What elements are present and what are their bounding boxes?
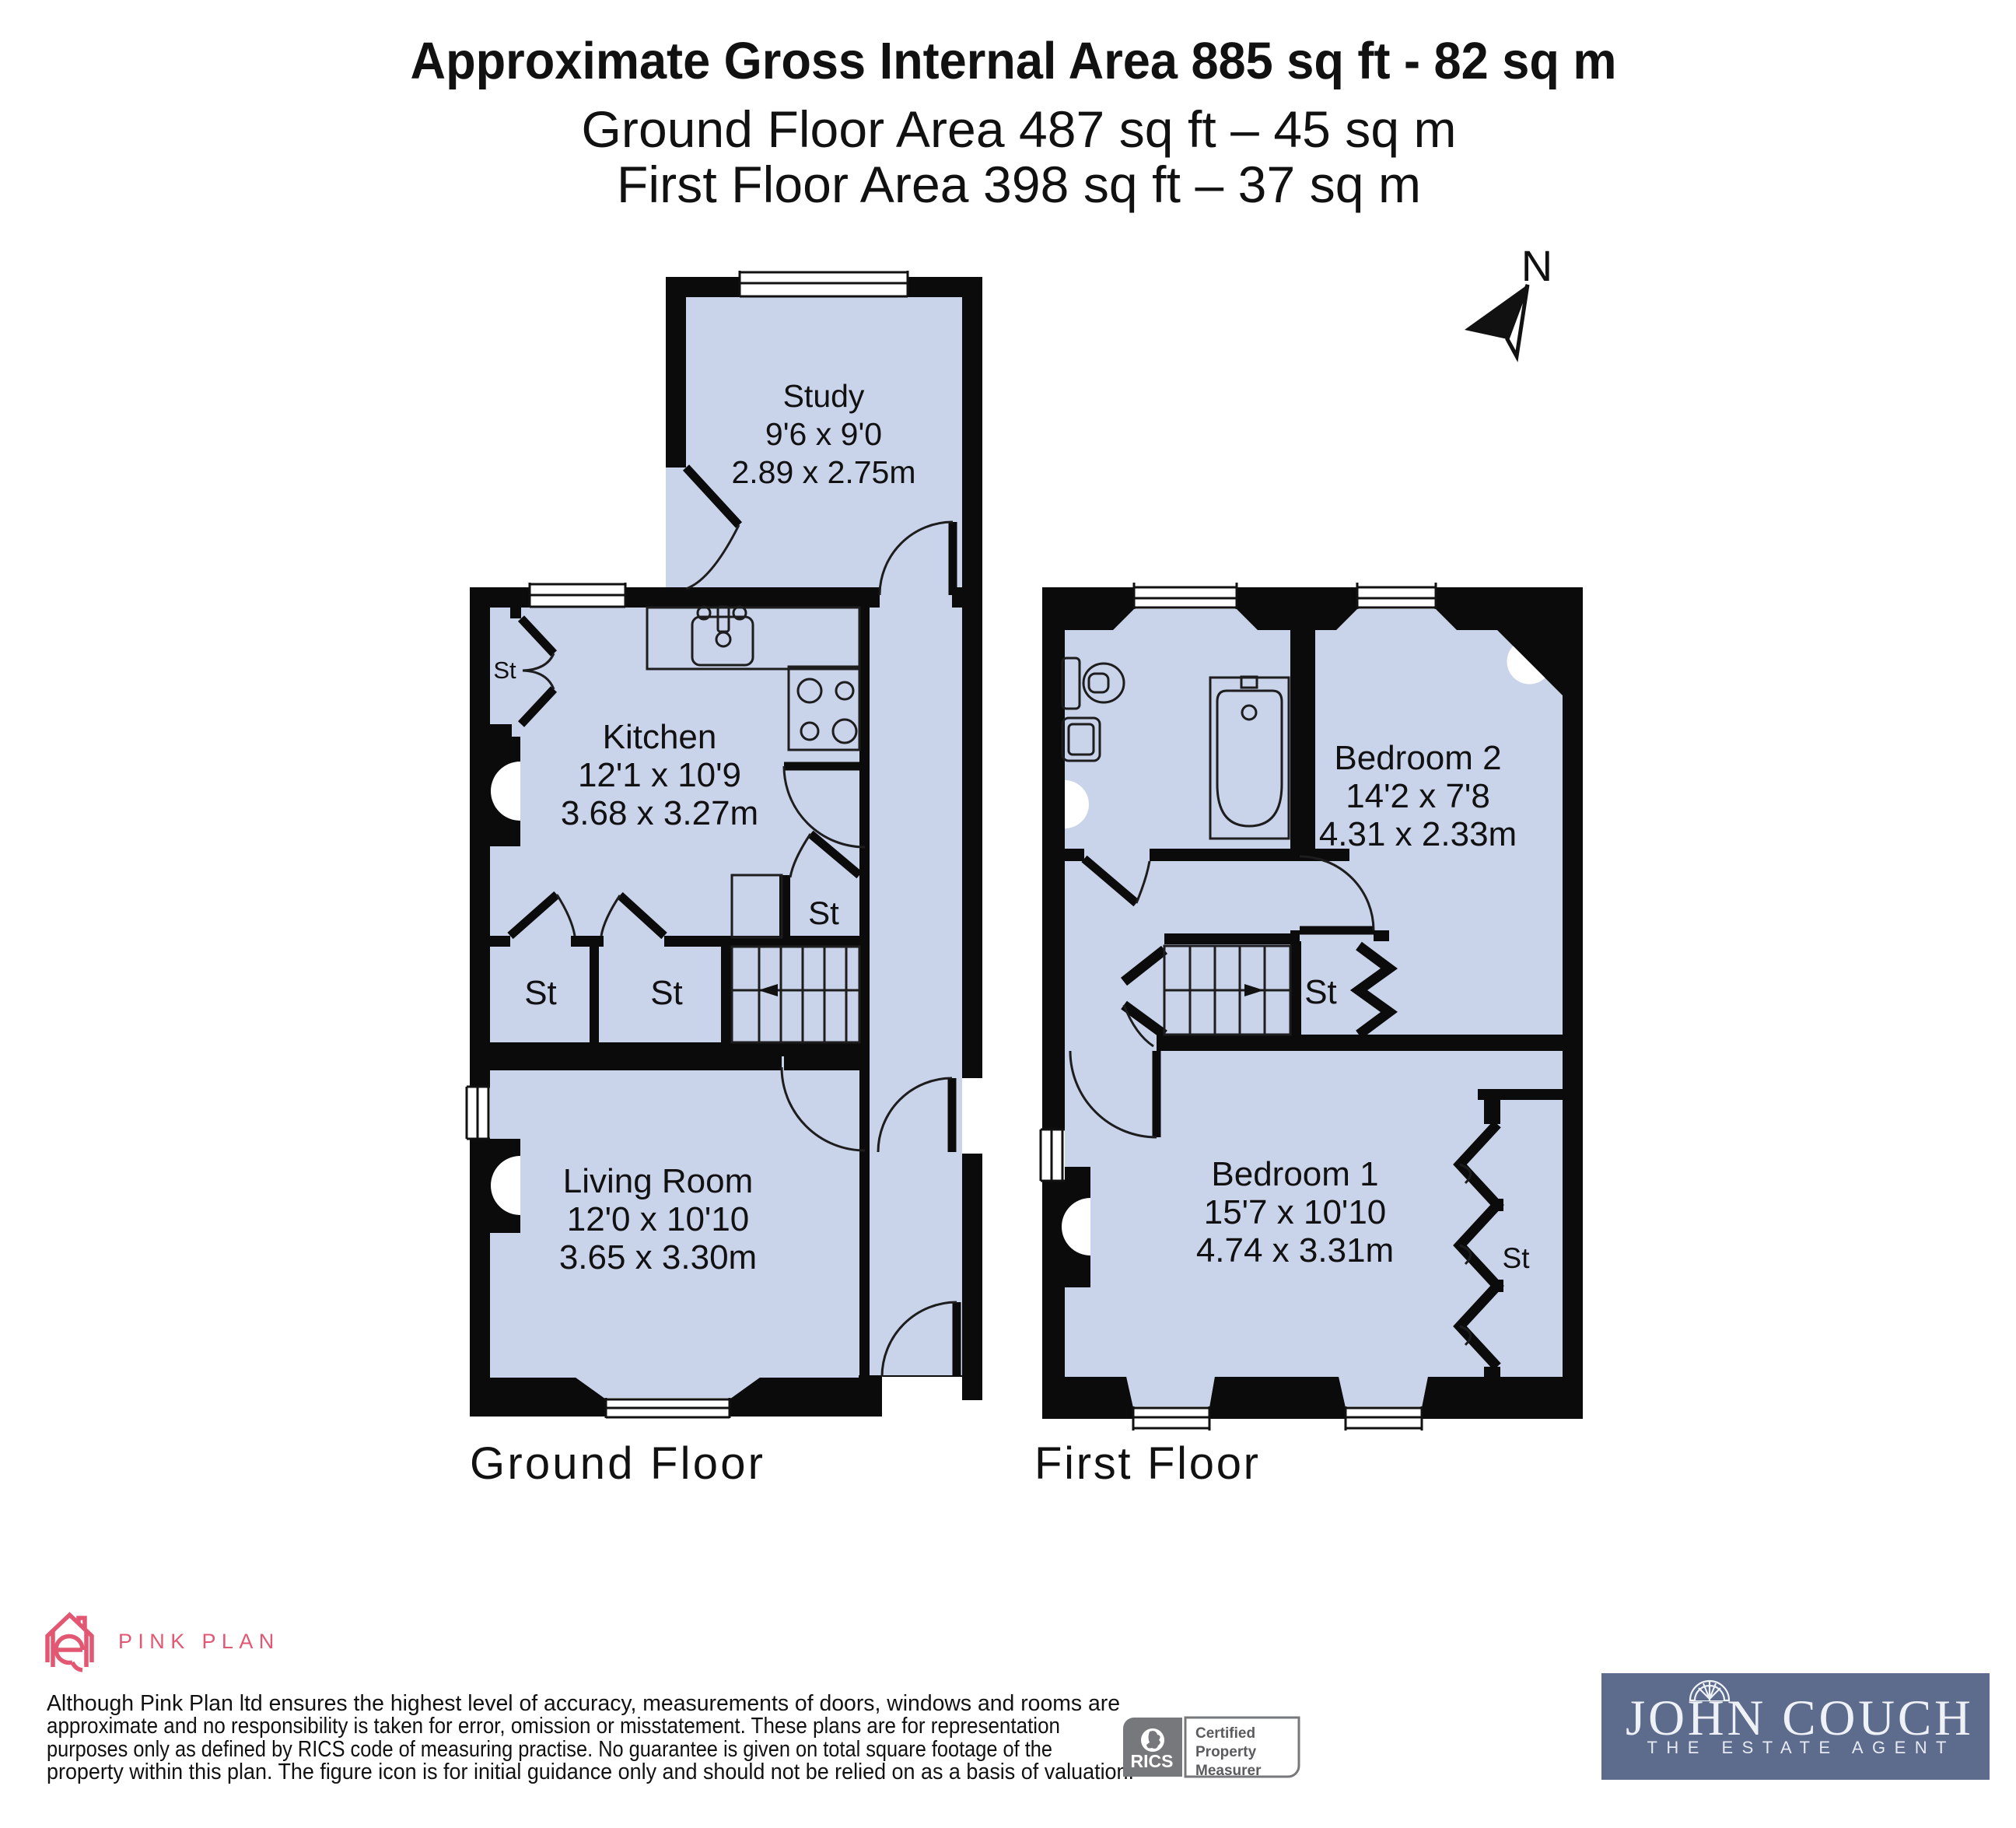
svg-text:Study: Study <box>783 378 865 414</box>
svg-text:Ground Floor: Ground Floor <box>470 1438 763 1489</box>
svg-text:PINK PLAN: PINK PLAN <box>118 1630 280 1653</box>
svg-text:Bedroom 1: Bedroom 1 <box>1211 1155 1378 1193</box>
svg-text:3.65 x 3.30m: 3.65 x 3.30m <box>559 1238 757 1276</box>
svg-text:12'0 x 10'10: 12'0 x 10'10 <box>567 1200 750 1238</box>
svg-text:14'2 x 7'8: 14'2 x 7'8 <box>1346 777 1490 815</box>
svg-text:12'1 x 10'9: 12'1 x 10'9 <box>578 756 741 794</box>
svg-text:Ground Floor Area 487 sq ft –: Ground Floor Area 487 sq ft – 45 sq m <box>582 100 1457 158</box>
svg-text:Although Pink Plan ltd ensures: Although Pink Plan ltd ensures the highe… <box>47 1691 1120 1716</box>
svg-text:St: St <box>808 895 839 931</box>
svg-text:4.74 x 3.31m: 4.74 x 3.31m <box>1196 1231 1394 1269</box>
svg-text:Living Room: Living Room <box>563 1162 754 1200</box>
svg-text:3.68 x 3.27m: 3.68 x 3.27m <box>561 794 758 832</box>
svg-text:property within this plan. The: property within this plan. The figure ic… <box>47 1760 1134 1784</box>
svg-text:N: N <box>1521 241 1552 290</box>
svg-text:purposes only as defined by RI: purposes only as defined by RICS code of… <box>47 1737 1052 1762</box>
svg-text:Approximate Gross Internal Are: Approximate Gross Internal Area 885 sq f… <box>411 32 1617 90</box>
svg-text:St: St <box>1503 1242 1531 1274</box>
svg-text:St: St <box>493 657 516 684</box>
svg-text:4.31 x 2.33m: 4.31 x 2.33m <box>1319 815 1517 853</box>
svg-text:St: St <box>524 974 557 1012</box>
svg-text:St: St <box>1304 973 1337 1011</box>
svg-text:Property: Property <box>1195 1744 1257 1760</box>
svg-text:9'6 x 9'0: 9'6 x 9'0 <box>765 416 882 452</box>
svg-text:First Floor: First Floor <box>1034 1438 1258 1489</box>
svg-text:Bedroom 2: Bedroom 2 <box>1334 739 1501 777</box>
svg-text:First Floor Area 398 sq ft – 3: First Floor Area 398 sq ft – 37 sq m <box>617 156 1421 213</box>
svg-text:RICS: RICS <box>1131 1751 1174 1771</box>
svg-text:15'7 x 10'10: 15'7 x 10'10 <box>1204 1193 1387 1231</box>
svg-text:St: St <box>650 974 683 1012</box>
svg-text:Certified: Certified <box>1195 1725 1255 1742</box>
svg-text:2.89 x 2.75m: 2.89 x 2.75m <box>731 454 915 490</box>
svg-text:approximate and no responsibil: approximate and no responsibility is tak… <box>47 1714 1060 1739</box>
svg-text:Measurer: Measurer <box>1195 1763 1262 1779</box>
svg-text:Kitchen: Kitchen <box>603 718 717 756</box>
